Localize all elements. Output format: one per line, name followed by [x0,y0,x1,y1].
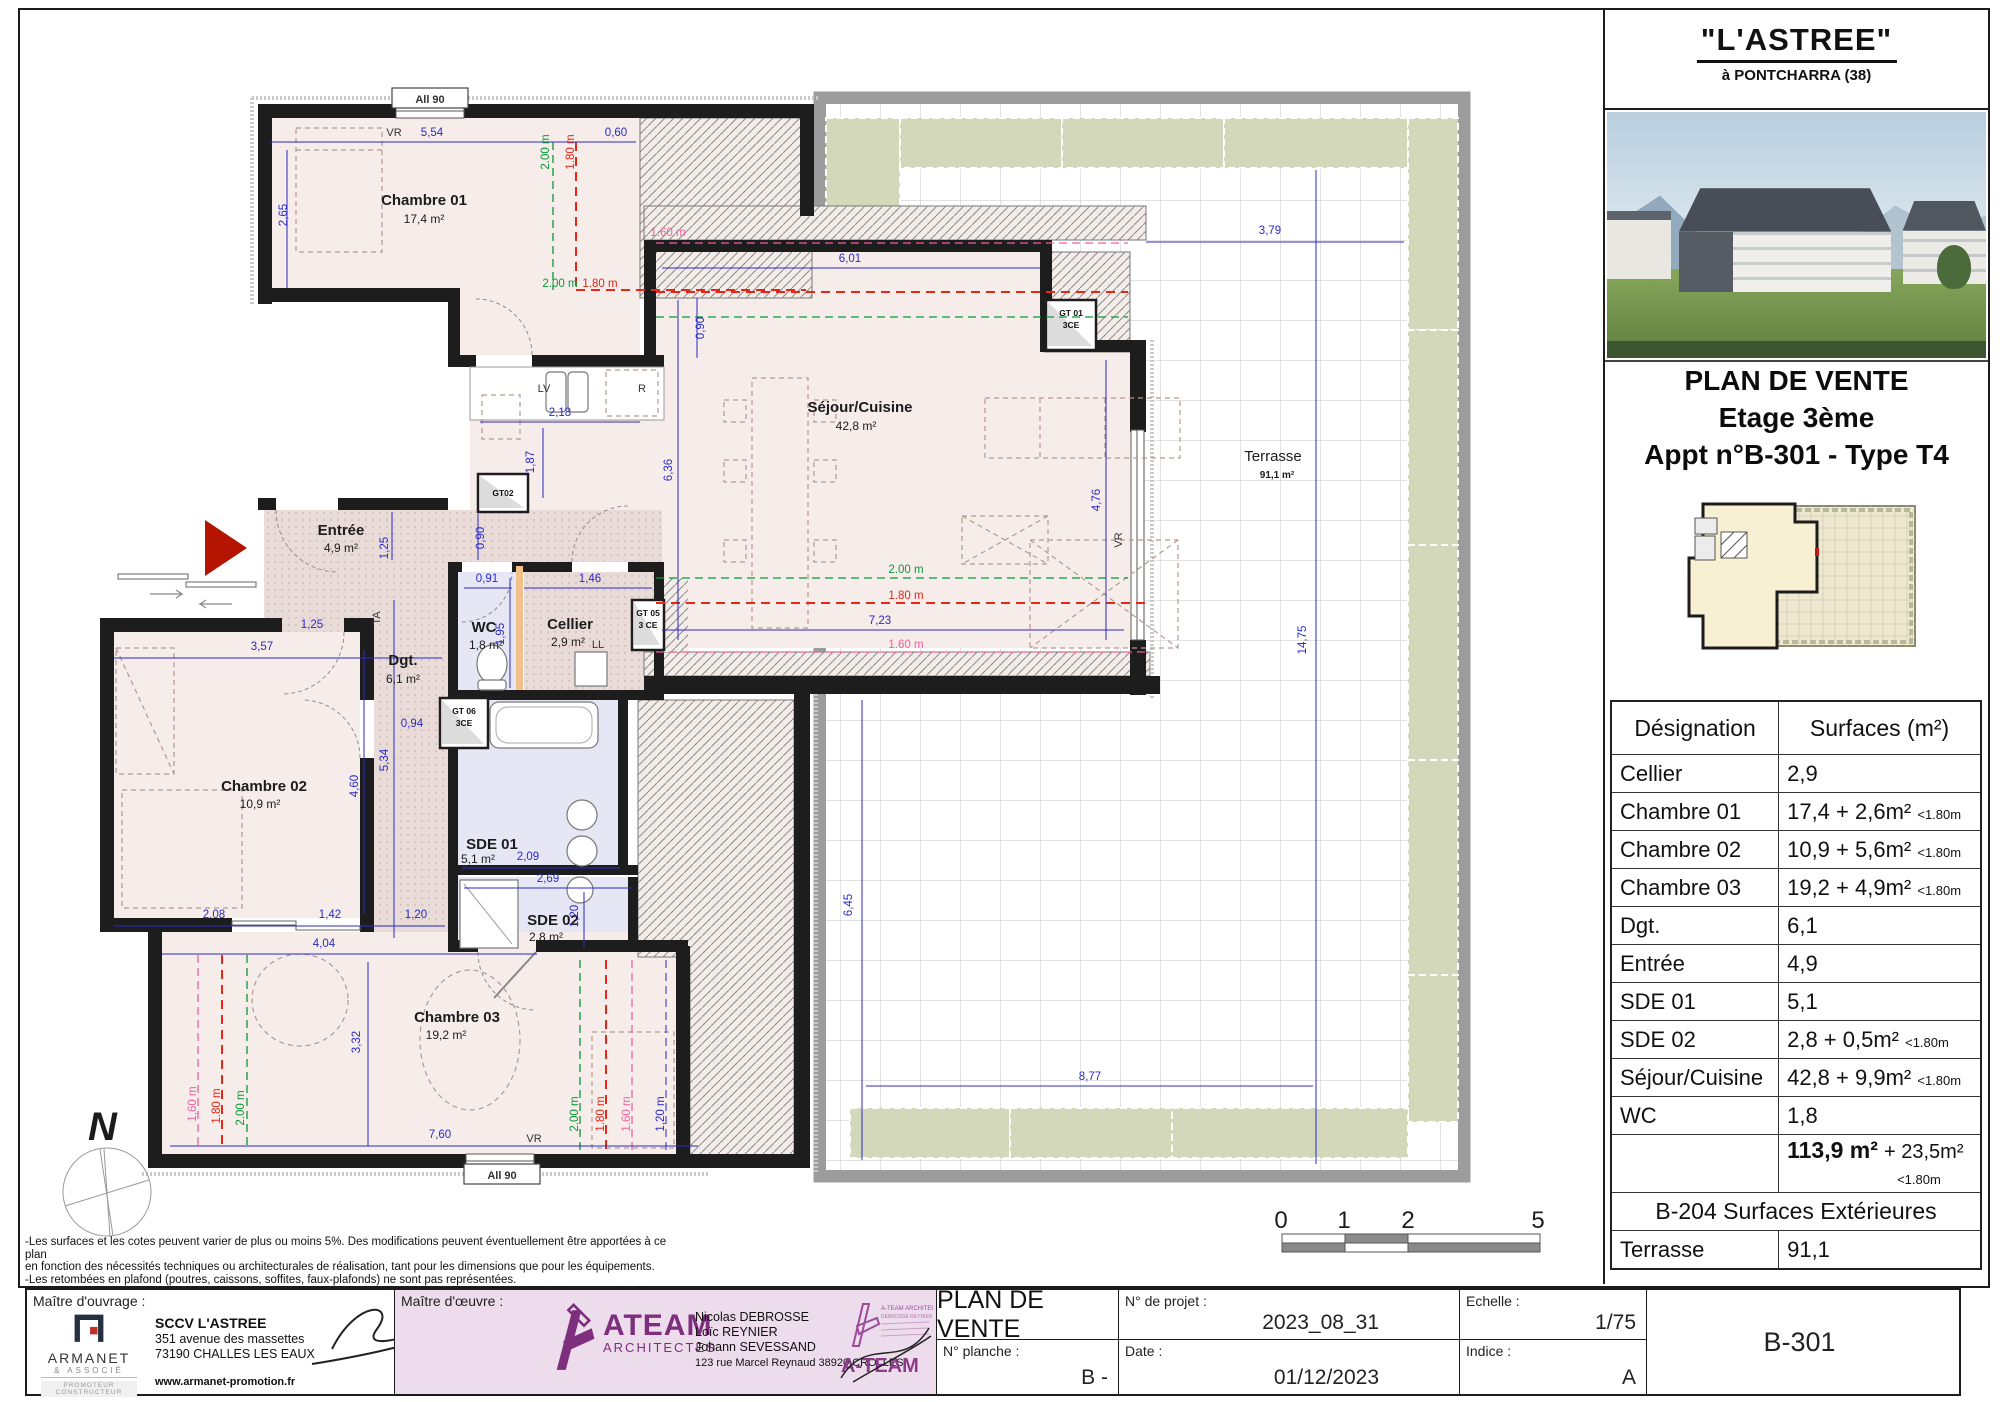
title-block: Maître d'ouvrage : ARMANET & ASSOCIÉ PRO… [25,1288,1961,1396]
north-arrow: N [63,1105,151,1236]
room-label: Entrée [318,522,365,539]
washbasin [567,836,597,866]
north-letter: N [88,1105,118,1149]
slide-arrow-left [200,600,232,608]
table-row: Chambre 0319,2 + 4,9m² <1.80m [1611,869,1981,907]
surfaces-table: Désignation Surfaces (m²) Cellier2,9 Cha… [1610,700,1982,1270]
dim-2m: 2.00 m [235,1090,247,1125]
roller-shutter-label: VR [1113,532,1125,547]
table-row: Entrée4,9 [1611,945,1981,983]
dim: 1,87 [525,451,537,473]
client-label: Maître d'ouvrage : [33,1293,145,1309]
dim: 7,23 [869,615,891,627]
note-line: -Les retombées en plafond (poutres, cais… [25,1274,685,1287]
scale-1: 1 [1337,1207,1350,1234]
room-label: Terrasse [1244,448,1302,465]
dim: 3,32 [351,1031,363,1053]
room-label: Dgt. [388,652,417,669]
client-cell: Maître d'ouvrage : ARMANET & ASSOCIÉ PRO… [27,1290,395,1394]
doc-title-cell: PLAN DE VENTE N° planche : B - [937,1290,1119,1394]
dim-2m: 2.00 m [542,278,577,290]
sheet-title-line: Etage 3ème [1605,399,1988,436]
row-name: Cellier [1611,755,1779,793]
index-value: A [1622,1366,1636,1390]
dim: 1,25 [301,619,323,631]
armanet-logo: ARMANET & ASSOCIÉ PROMOTEUR CONSTRUCTEUR [41,1312,137,1397]
table-row: WC1,8 [1611,1097,1981,1135]
dim: 6,01 [839,253,861,265]
room-area: 19,2 m² [426,1028,467,1042]
client-company: SCCV L'ASTREE [155,1315,266,1331]
unit-marker [1815,548,1819,556]
dim: 2,18 [549,407,571,419]
gt-label: 3CE [1063,320,1080,330]
dim: 1,20 [405,909,427,921]
row-name: Dgt. [1611,907,1779,945]
room-label: Chambre 03 [414,1009,500,1026]
building-main [1679,188,1891,291]
dim: 5,34 [379,748,391,771]
dim: 0,91 [476,573,498,585]
drawing-reference: B-301 [1647,1290,1952,1394]
room-label: SDE 01 [466,836,518,853]
room-label: Cellier [547,616,593,633]
gt-label: GT 05 [636,608,660,618]
dim: 3,79 [1259,225,1281,237]
table-row: Terrasse 91,1 [1611,1231,1981,1270]
col-header: Surfaces (m²) [1779,701,1981,755]
sheet-number-value: B - [1081,1366,1108,1390]
gt-label: 3 CE [639,620,658,630]
client-address: SCCV L'ASTREE 351 avenue des massettes 7… [155,1316,315,1362]
row-value: 42,8 + 9,9m² <1.80m [1779,1059,1981,1097]
bathtub [490,702,598,748]
doc-title: PLAN DE VENTE [937,1290,1118,1340]
row-name: Chambre 01 [1611,793,1779,831]
dim: 4,76 [1091,489,1103,511]
row-name: Entrée [1611,945,1779,983]
date-label: Date : [1125,1343,1162,1359]
client-city: 73190 CHALLES LES EAUX [155,1347,315,1361]
date-value: 01/12/2023 [1274,1366,1379,1390]
architect-name: Loïc REYNIER [695,1325,778,1339]
dim-180: 1.80 m [565,134,577,169]
hedge [1607,341,1986,358]
room-area: 4,9 m² [324,541,358,555]
room-area: 42,8 m² [836,419,877,433]
sheet-title-line: PLAN DE VENTE [1605,362,1988,399]
scale-cell: Echelle : 1/75 Indice : A [1460,1290,1647,1394]
entrance-arrow [205,520,247,576]
table-row: SDE 022,8 + 0,5m² <1.80m [1611,1021,1981,1059]
dim: 2,69 [537,873,559,885]
dim: 1,25 [379,537,391,559]
tree [1937,245,1971,289]
dim: 0,90 [695,317,707,339]
table-row: Chambre 0117,4 + 2,6m² <1.80m [1611,793,1981,831]
stamp-line: DEBROSSE REYNIER SEVESSAND [881,1314,933,1320]
col-header: Désignation [1611,701,1779,755]
project-header: "L'ASTREE" à PONTCHARRA (38) [1605,8,1988,110]
dim: 0,94 [401,718,424,730]
dim: 2,65 [278,204,290,226]
key-plan-thumbnail [1665,496,1925,691]
row-value: 2,8 + 0,5m² <1.80m [1779,1021,1981,1059]
dim-160: 1,60 m [187,1086,199,1121]
room-area: 6,1 m² [386,672,420,686]
dim: 2,08 [203,909,225,921]
building-render-photo [1607,112,1986,358]
washing-machine [575,652,607,686]
ateam-logo-icon [545,1302,597,1378]
table-row: Dgt.6,1 [1611,907,1981,945]
row-value: 91,1 [1779,1231,1981,1270]
architect-name: Johann SEVESSAND [695,1340,816,1354]
dim: 0,60 [605,127,627,139]
architect-cell: Maître d'œuvre : ATEAM ARCHITECTES Nicol… [395,1290,937,1394]
dim: 1,46 [579,573,601,585]
row-name: Terrasse [1611,1231,1779,1270]
row-name: SDE 01 [1611,983,1779,1021]
armanet-tagline: PROMOTEUR CONSTRUCTEUR [41,1381,137,1397]
architect-name: Nicolas DEBROSSE [695,1310,809,1324]
dim: 6,45 [843,894,855,916]
scale-0: 0 [1274,1207,1287,1234]
scale-5: 5 [1531,1207,1544,1234]
building-left [1607,211,1671,279]
scale-bar: 0 1 2 5 [1274,1207,1544,1252]
dim: 1,95 [495,623,507,645]
dim: 7,60 [429,1129,451,1141]
dim-180: 1.80 m [211,1088,223,1123]
row-value: 19,2 + 4,9m² <1.80m [1779,869,1981,907]
dim: 0,90 [475,527,487,549]
project-number-cell: N° de projet : 2023_08_31 Date : 01/12/2… [1119,1290,1460,1394]
ta-label: TA [371,611,383,625]
row-value: 10,9 + 5,6m² <1.80m [1779,831,1981,869]
dim: 4,04 [313,938,336,950]
row-value: 2,9 [1779,755,1981,793]
roller-shutter-label: VR [526,1133,541,1145]
client-street: 351 avenue des massettes [155,1332,304,1346]
dim: 2,09 [517,851,539,863]
dim: 3,57 [251,641,273,653]
dim-160: 1.60 m [621,1096,633,1131]
room-area: 2,9 m² [551,635,585,649]
dim-160: 1.60 m [888,639,923,651]
row-name: Chambre 03 [1611,869,1779,907]
dim-2m: 2.00 m [540,134,552,169]
architect-label: Maître d'œuvre : [401,1293,503,1309]
dim-180: 1.80 m [582,278,617,290]
client-website: www.armanet-promotion.fr [155,1376,295,1388]
row-name: Séjour/Cuisine [1611,1059,1779,1097]
gt-label: GT 01 [1059,308,1083,318]
row-value: 4,9 [1779,945,1981,983]
project-title: "L'ASTREE" [1605,22,1988,58]
title-underline [1697,60,1897,63]
row-name: WC [1611,1097,1779,1135]
gt-label: GT 06 [452,706,476,716]
room-area: 10,9 m² [240,797,281,811]
note-line: -Les surfaces et les cotes peuvent varie… [25,1236,685,1261]
dim-180: 1.80 m [595,1096,607,1131]
dim-180: 1.80 m [888,590,923,602]
room-label: Chambre 01 [381,192,467,209]
pocket-door [516,566,523,690]
armanet-sub: & ASSOCIÉ [41,1366,137,1378]
index-label: Indice : [1466,1343,1511,1359]
table-row: Chambre 0210,9 + 5,6m² <1.80m [1611,831,1981,869]
row-value: 17,4 + 2,6m² <1.80m [1779,793,1981,831]
scale-label: Echelle : [1466,1293,1520,1309]
room-label: Séjour/Cuisine [807,399,912,416]
dim: 1,20 [569,905,581,927]
table-row: SDE 015,1 [1611,983,1981,1021]
roller-shutter-label: VR [386,127,401,139]
project-location: à PONTCHARRA (38) [1605,67,1988,84]
row-value: 6,1 [1779,907,1981,945]
dim: 14,75 [1297,626,1309,655]
architect-stamp: A-TEAM ARCHITECTES DEBROSSE REYNIER SEVE… [833,1294,933,1388]
dim: 6,36 [663,459,675,481]
gt-label: GT02 [492,488,514,498]
room-area: 17,4 m² [404,212,445,226]
note-line: en fonction des nécessités techniques ou… [25,1261,685,1274]
room-area: 5,1 m² [461,852,495,866]
stamp-line: A-TEAM ARCHITECTES [881,1306,933,1312]
gt-label: 3CE [456,718,473,728]
total-value: 113,9 m² + 23,5m² <1.80m [1779,1135,1981,1193]
table-row: Cellier2,9 [1611,755,1981,793]
sheet-title-block: PLAN DE VENTE Etage 3ème Appt n°B-301 - … [1605,360,1988,473]
plan-de-vente-sheet: Chambre 01 17,4 m² Séjour/Cuisine 42,8 m… [0,0,2000,1402]
dim: 4,60 [349,775,361,797]
row-name: Chambre 02 [1611,831,1779,869]
window-type-label: All 90 [415,94,444,106]
dim: 8,77 [1079,1071,1101,1083]
armanet-logo-icon [69,1312,109,1344]
sheet-number-label: N° planche : [943,1343,1019,1359]
fridge-label: R [638,383,646,395]
washbasin [567,877,593,903]
info-panel: "L'ASTREE" à PONTCHARRA (38) PLAN DE VEN… [1603,8,1988,1284]
dim-120: 1,20 m [655,1096,667,1131]
room-label: WC [472,619,497,636]
section-row: B-204 Surfaces Extérieures [1611,1193,1981,1231]
dim-160: 1.60 m [650,227,685,239]
floor-plan-svg: Chambre 01 17,4 m² Séjour/Cuisine 42,8 m… [0,0,1600,1402]
dim: 1,42 [319,909,341,921]
room-area: 91,1 m² [1260,470,1295,481]
dishwasher-label: LV [538,383,551,395]
dim-2m: 2.00 m [888,564,923,576]
sheet-title-line: Appt n°B-301 - Type T4 [1605,436,1988,473]
row-value: 5,1 [1779,983,1981,1021]
dim-2m: 2.00 m [569,1096,581,1131]
scale-2: 2 [1401,1207,1414,1234]
project-number-value: 2023_08_31 [1262,1311,1379,1335]
scale-value: 1/75 [1595,1311,1636,1335]
room-label: Chambre 02 [221,778,307,795]
room-area: 2,8 m² [529,930,563,944]
washbasin [567,800,597,830]
dim: 5,54 [421,127,444,139]
row-value: 1,8 [1779,1097,1981,1135]
armanet-name: ARMANET [41,1350,137,1366]
row-name: SDE 02 [1611,1021,1779,1059]
slide-arrow-right [150,590,182,598]
washer-label: LL [592,639,604,651]
table-row: Séjour/Cuisine42,8 + 9,9m² <1.80m [1611,1059,1981,1097]
total-row: 113,9 m² + 23,5m² <1.80m [1611,1135,1981,1193]
window-type-label: All 90 [487,1170,516,1182]
project-number-label: N° de projet : [1125,1293,1207,1309]
